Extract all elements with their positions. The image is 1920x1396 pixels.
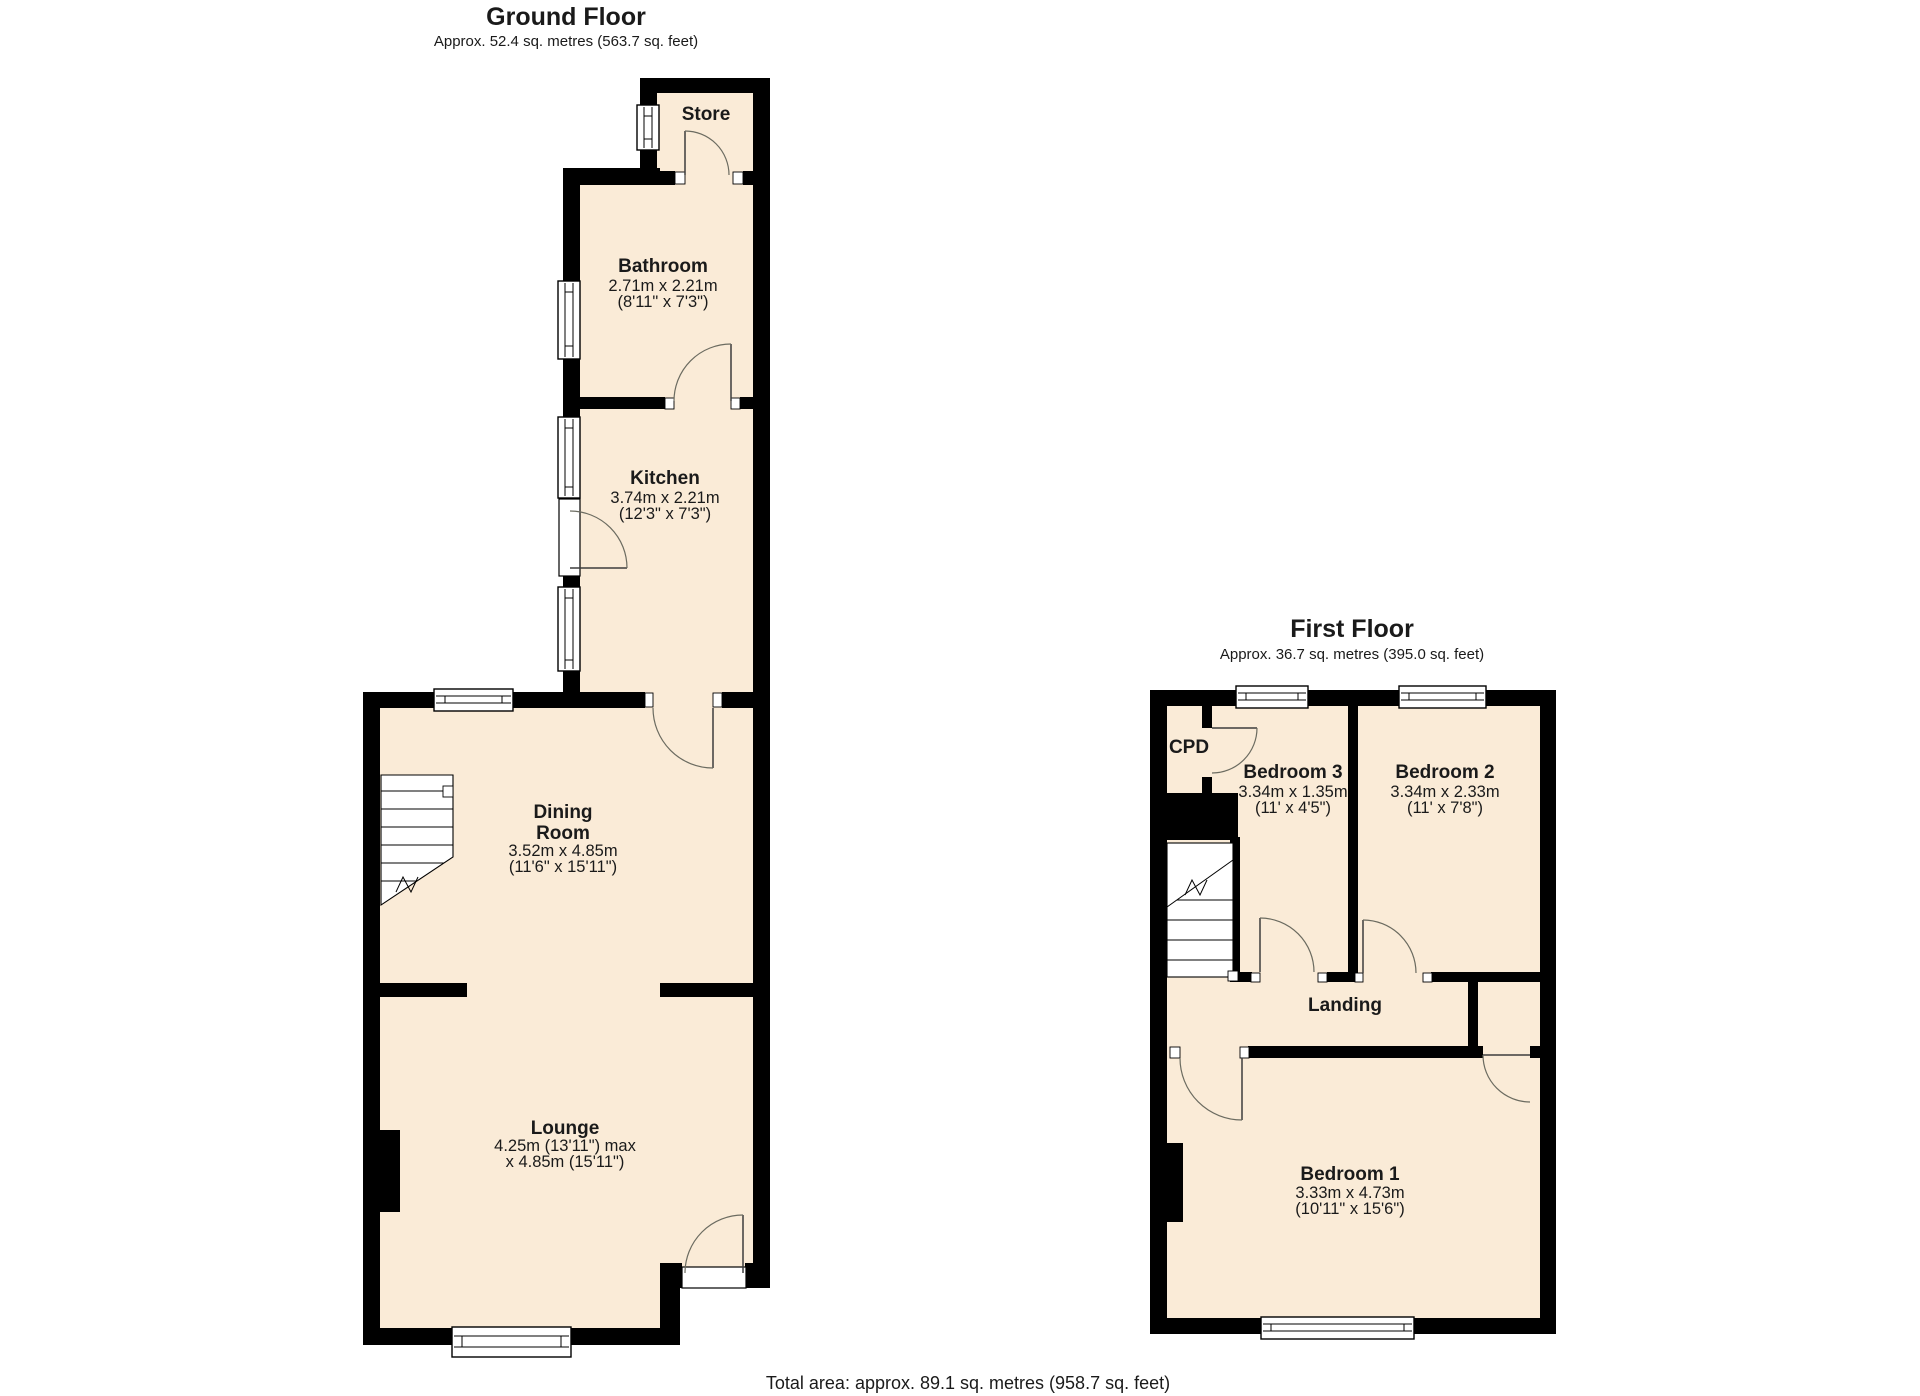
kitchen-window-upper <box>558 417 580 498</box>
stairs-outline <box>1167 843 1233 977</box>
door-jamb <box>713 693 722 707</box>
door-jamb <box>645 693 653 707</box>
door-jamb <box>675 172 685 184</box>
bedroom1-dim-imperial: (10'11" x 15'6") <box>1295 1200 1404 1218</box>
entrance-recess-cutout <box>680 1288 780 1350</box>
store-label: Store <box>682 104 731 125</box>
first-stairs <box>1167 843 1238 981</box>
floorplan-page: Ground Floor Approx. 52.4 sq. metres (56… <box>0 0 1920 1396</box>
door-jamb <box>1423 973 1432 982</box>
floorplan-drawing: Ground Floor Approx. 52.4 sq. metres (56… <box>0 0 1920 1396</box>
kitchen-dim-imperial: (12'3" x 7'3") <box>619 505 711 523</box>
lounge-label: Lounge <box>531 1118 600 1139</box>
door-jamb <box>1251 973 1260 982</box>
stair-newel <box>443 786 453 797</box>
first-floor-plan: First Floor Approx. 36.7 sq. metres (395… <box>1150 615 1556 1339</box>
cpd-label: CPD <box>1169 737 1209 758</box>
bathroom-window <box>558 281 580 359</box>
kitchen-side-doorway <box>559 499 580 576</box>
door-jamb <box>733 172 743 184</box>
store-window <box>637 105 659 150</box>
front-doorway <box>682 1267 746 1288</box>
first-floor-title: First Floor <box>1290 615 1414 643</box>
bathroom-label: Bathroom <box>618 256 708 277</box>
kitchen-label: Kitchen <box>630 468 700 489</box>
door-jamb <box>665 398 674 409</box>
bedroom3-window <box>1236 686 1308 708</box>
lounge-window <box>452 1327 571 1357</box>
lounge-dim-line2: x 4.85m (15'11") <box>506 1153 625 1171</box>
bedroom1-window <box>1261 1317 1414 1339</box>
door-jamb <box>1170 1047 1180 1058</box>
first-floor-subtitle: Approx. 36.7 sq. metres (395.0 sq. feet) <box>1220 646 1484 663</box>
bedroom2-window <box>1399 686 1486 708</box>
bedroom2-label: Bedroom 2 <box>1395 762 1494 783</box>
landing-label: Landing <box>1308 995 1382 1016</box>
ground-floor-subtitle: Approx. 52.4 sq. metres (563.7 sq. feet) <box>434 33 698 50</box>
dining-window <box>434 689 513 711</box>
total-area-text: Total area: approx. 89.1 sq. metres (958… <box>766 1373 1170 1393</box>
dining-room-label-line2: Room <box>536 823 590 844</box>
bedroom2-dim-imperial: (11' x 7'8") <box>1407 799 1483 817</box>
door-jamb <box>1318 973 1327 982</box>
ground-floor-plan: Ground Floor Approx. 52.4 sq. metres (56… <box>363 3 780 1357</box>
bedroom3-dim-imperial: (11' x 4'5") <box>1255 799 1331 817</box>
kitchen-window-lower <box>558 587 580 671</box>
door-jamb <box>1240 1047 1249 1058</box>
bathroom-dim-imperial: (8'11" x 7'3") <box>617 293 708 311</box>
bedroom1-label: Bedroom 1 <box>1300 1164 1400 1185</box>
stair-newel <box>1228 971 1238 981</box>
dining-dim-imperial: (11'6" x 15'11") <box>509 858 617 876</box>
door-jamb <box>1355 973 1363 982</box>
ground-floor-title: Ground Floor <box>486 3 646 31</box>
bedroom3-label: Bedroom 3 <box>1243 762 1342 783</box>
door-jamb <box>731 398 740 409</box>
dining-room-label-line1: Dining <box>533 802 592 823</box>
